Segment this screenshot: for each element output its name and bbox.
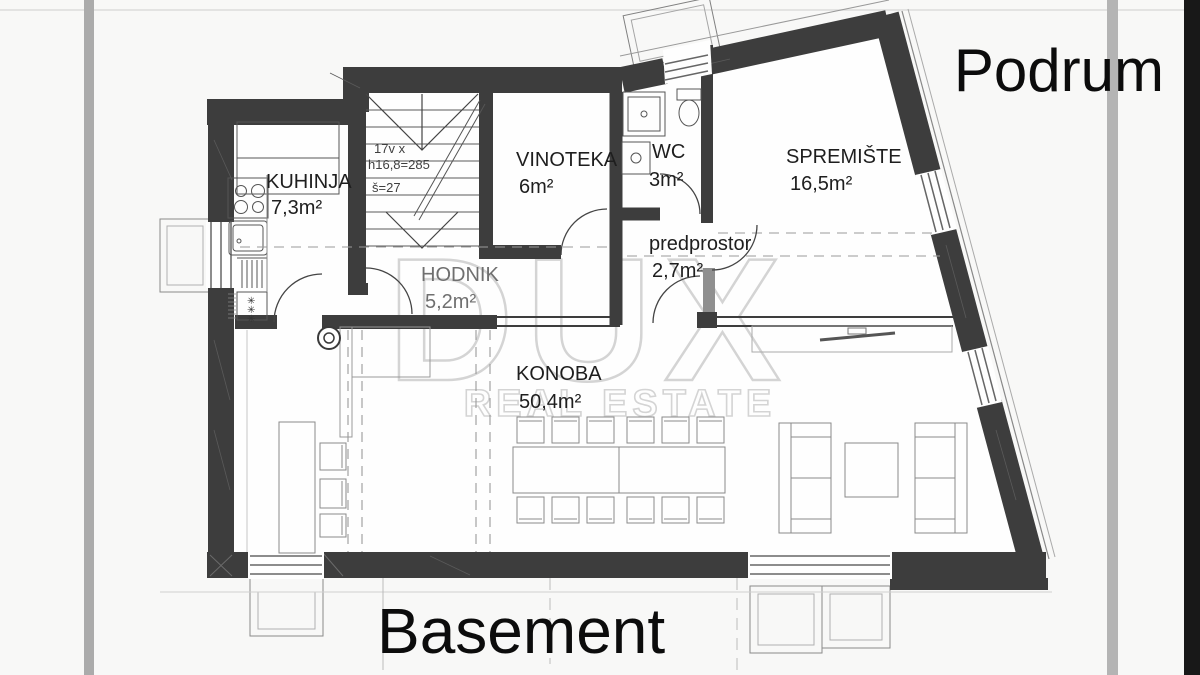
room-area-predprostor: 2,7m² [652,260,703,282]
wall-nub-predprostor [697,312,717,328]
boiler-marks: ✳ ✳ ✳ [247,296,255,325]
watermark-tagline: REAL ESTATE [464,383,777,425]
room-area-vinoteka: 6m² [519,176,554,198]
light-well-left-inner [167,226,203,285]
room-label-wc: WC [652,141,685,163]
room-area-konoba: 50,4m² [519,391,582,413]
light-well-bottom-2a [750,586,822,653]
floor-plan-page: DUX REAL ESTATE [0,0,1200,675]
room-label-kuhinja: KUHINJA [266,171,352,193]
wall-cap-stairs [348,283,368,295]
room-label-konoba: KONOBA [516,363,602,385]
title-basement: Basement [377,595,665,667]
title-podrum: Podrum [954,37,1164,104]
room-label-hodnik: HODNIK [421,264,499,286]
left-gray-stripe [84,0,94,675]
stairs-note-line1: 17v x [374,141,406,156]
room-area-kuhinja: 7,3m² [271,197,322,219]
light-well-bottom-2a-inner [758,594,814,645]
room-label-spremiste: SPREMIŠTE [786,145,902,168]
bottom-right-wall-thick [890,578,1048,590]
room-area-spremiste: 16,5m² [790,173,853,195]
light-well-bottom-2b [822,586,890,648]
room-area-wc: 3m² [649,169,684,191]
light-well-bottom-1-inner [258,592,315,629]
stairs-note-line3: š=27 [372,180,401,195]
boiler-comb-lines [228,294,236,318]
light-well-bottom-1 [250,578,323,636]
dishwasher-hatch [237,258,267,288]
room-label-predprostor: predprostor [649,233,752,255]
light-well-bottom-2b-inner [830,594,882,640]
floor-drain-inner [324,333,334,343]
right-black-bar [1184,0,1200,675]
floor-drain [318,327,340,349]
boiler-mark: ✳ [247,314,255,325]
stairs-note-line2: h16,8=285 [368,157,430,172]
room-area-hodnik: 5,2m² [425,291,476,313]
floor-plan-svg: DUX REAL ESTATE [0,0,1200,675]
room-label-vinoteka: VINOTEKA [516,149,618,171]
